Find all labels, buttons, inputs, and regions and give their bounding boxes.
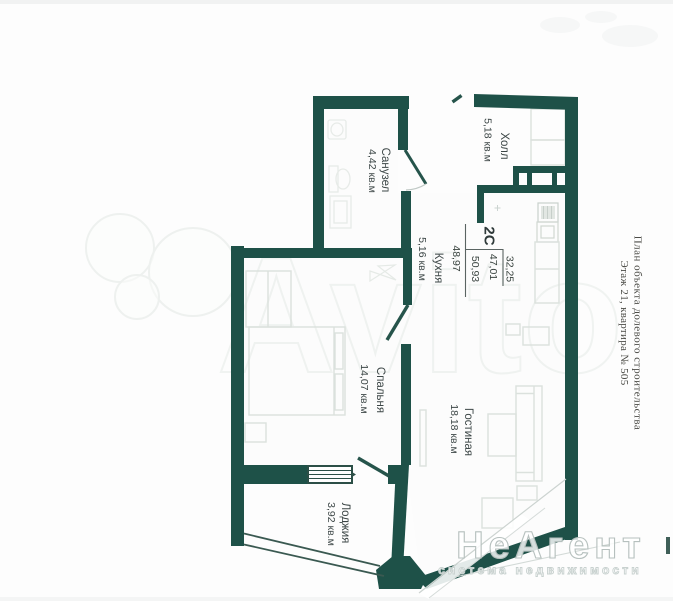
svg-text:18,18 кв.м: 18,18 кв.м xyxy=(448,404,460,454)
svg-text:Санузел: Санузел xyxy=(379,148,391,193)
svg-text:4,42 кв.м: 4,42 кв.м xyxy=(366,149,378,193)
svg-text:14,07 кв.м: 14,07 кв.м xyxy=(358,364,370,414)
svg-text:Гостиная: Гостиная xyxy=(462,408,474,456)
svg-text:Холл: Холл xyxy=(498,132,510,159)
svg-text:5,18 кв.м: 5,18 кв.м xyxy=(482,118,494,162)
svg-text:Этаж 21, квартира № 505: Этаж 21, квартира № 505 xyxy=(618,260,630,385)
svg-text:Лоджия: Лоджия xyxy=(339,503,351,544)
svg-text:32,25: 32,25 xyxy=(504,256,516,282)
svg-text:система недвижимости: система недвижимости xyxy=(438,563,642,577)
svg-text:48,97: 48,97 xyxy=(450,245,462,271)
svg-text:47,01: 47,01 xyxy=(487,254,499,280)
svg-text:План объекта долевого строител: План объекта долевого строительства xyxy=(632,236,644,431)
svg-text:3,92 кв.м: 3,92 кв.м xyxy=(325,502,337,546)
svg-text:2С: 2С xyxy=(481,226,498,245)
svg-text:5,16 кв.м: 5,16 кв.м xyxy=(416,237,428,281)
svg-text:НеАгент: НеАгент xyxy=(456,525,646,567)
svg-text:50,93: 50,93 xyxy=(469,256,481,282)
svg-text:Спальня: Спальня xyxy=(374,367,386,413)
svg-text:Кухня: Кухня xyxy=(432,253,444,284)
